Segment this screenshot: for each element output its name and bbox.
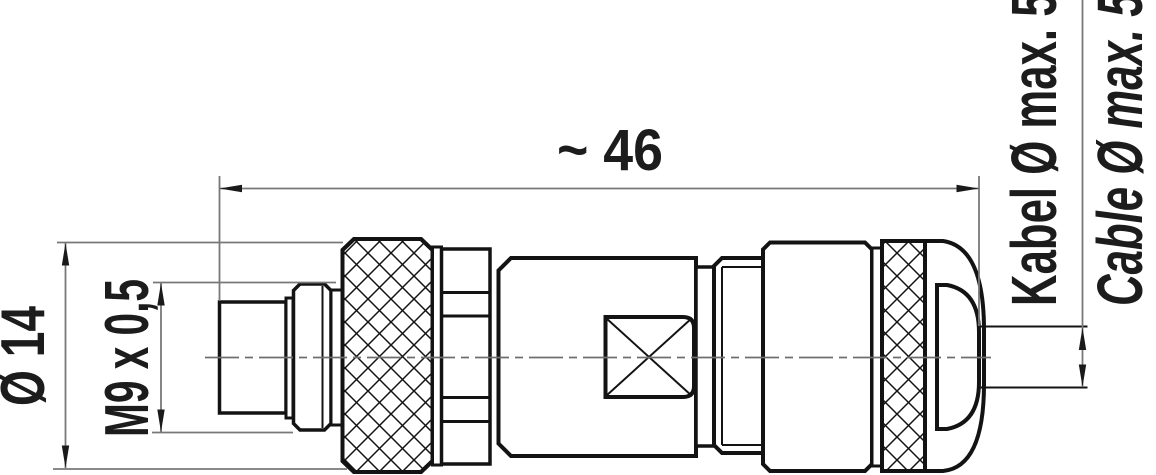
overall-length-label: ~ 46 [557,118,663,183]
technical-drawing-canvas: ~ 46 Ø 14 M9 x 0,5 Kabel Ø max. 5,5 C [0,0,1156,475]
arrow-up-icon [1079,328,1086,351]
thread-label: M9 x 0,5 [93,279,162,437]
rear-knurl-pattern [882,241,925,471]
arrow-down-icon [1079,365,1086,388]
hex-flange [442,249,491,464]
arrow-up-icon [62,243,69,266]
strain-relief-cap [925,241,984,471]
cable-exit [980,327,1088,388]
dimension-cable-diameter: Kabel Ø max. 5,5 Cable Ø max. 5,5 [998,0,1156,387]
arrow-down-icon [62,446,69,469]
cable-diameter-label-de: Kabel Ø max. 5,5 [998,0,1070,306]
connector-outline [220,239,1088,472]
arrow-right-icon [957,185,980,192]
arrow-left-icon [220,185,243,192]
cable-diameter-label-en: Cable Ø max. 5,5 [1084,0,1156,306]
connector-drawing: ~ 46 Ø 14 M9 x 0,5 Kabel Ø max. 5,5 C [0,0,1156,475]
knurl-pattern-front [343,239,433,472]
outer-diameter-label: Ø 14 [0,306,58,406]
neck-ring [696,267,714,446]
